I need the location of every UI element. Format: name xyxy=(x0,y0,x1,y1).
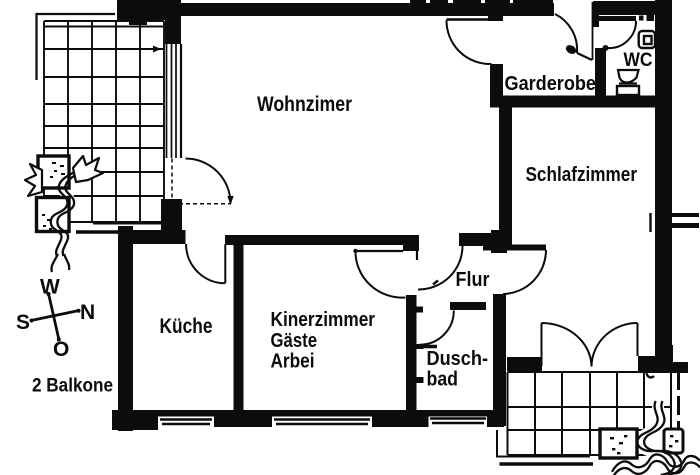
svg-text:Schlafzimmer: Schlafzimmer xyxy=(526,163,638,186)
svg-text:Dusch-: Dusch- xyxy=(427,348,489,370)
svg-text:Flur: Flur xyxy=(456,268,490,291)
svg-text:S: S xyxy=(16,311,30,334)
svg-text:Gäste: Gäste xyxy=(271,330,318,352)
svg-text:bad: bad xyxy=(427,369,459,391)
svg-text:Küche: Küche xyxy=(160,315,213,338)
svg-text:Garderobe: Garderobe xyxy=(505,72,597,95)
svg-text:N: N xyxy=(80,301,95,324)
svg-text:Kinerzimmer: Kinerzimmer xyxy=(271,309,376,331)
svg-text:W: W xyxy=(40,276,60,299)
svg-text:Wohnzimer: Wohnzimer xyxy=(257,93,352,116)
svg-text:O: O xyxy=(53,338,69,361)
svg-text:2 Balkone: 2 Balkone xyxy=(32,375,113,397)
svg-text:WC: WC xyxy=(624,50,653,71)
svg-text:Arbei: Arbei xyxy=(271,351,315,373)
